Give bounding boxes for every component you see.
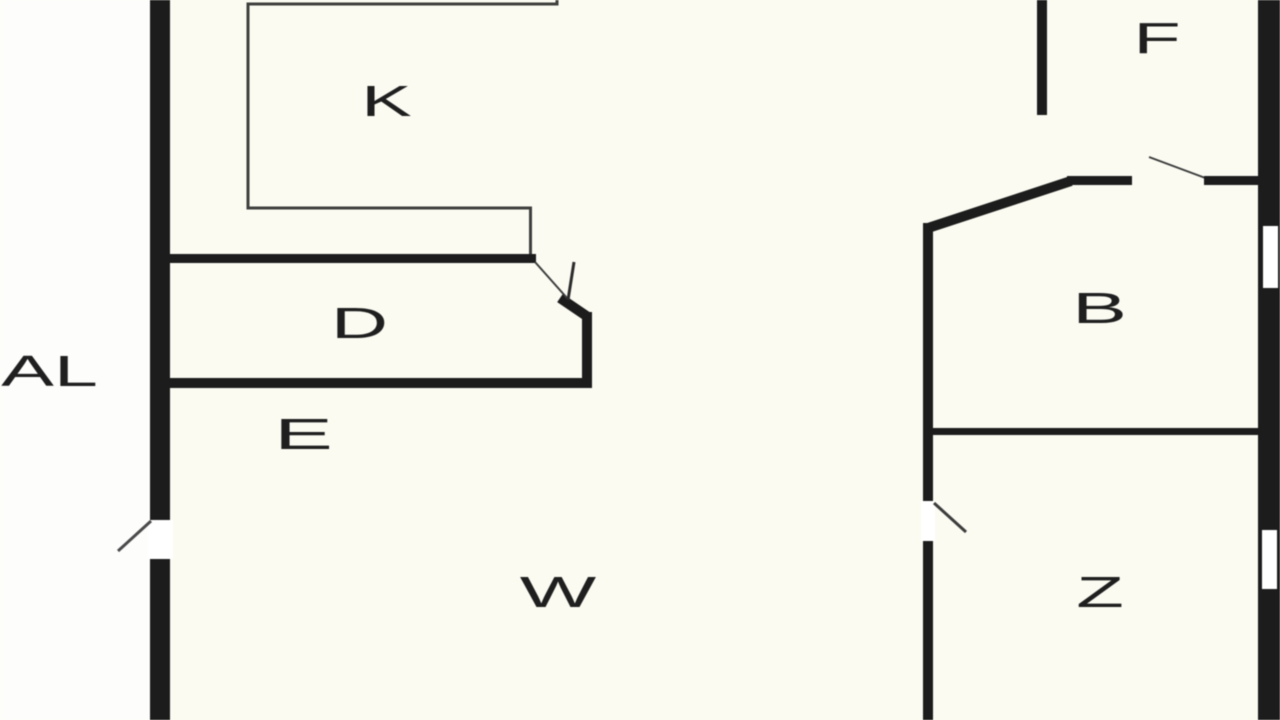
- svg-text:B: B: [1072, 283, 1127, 332]
- svg-text:AL: AL: [1, 346, 98, 395]
- svg-text:K: K: [361, 77, 411, 126]
- svg-text:W: W: [520, 567, 597, 616]
- svg-text:F: F: [1133, 14, 1180, 63]
- svg-text:E: E: [274, 409, 333, 458]
- svg-text:D: D: [331, 298, 388, 347]
- svg-text:Z: Z: [1076, 568, 1124, 617]
